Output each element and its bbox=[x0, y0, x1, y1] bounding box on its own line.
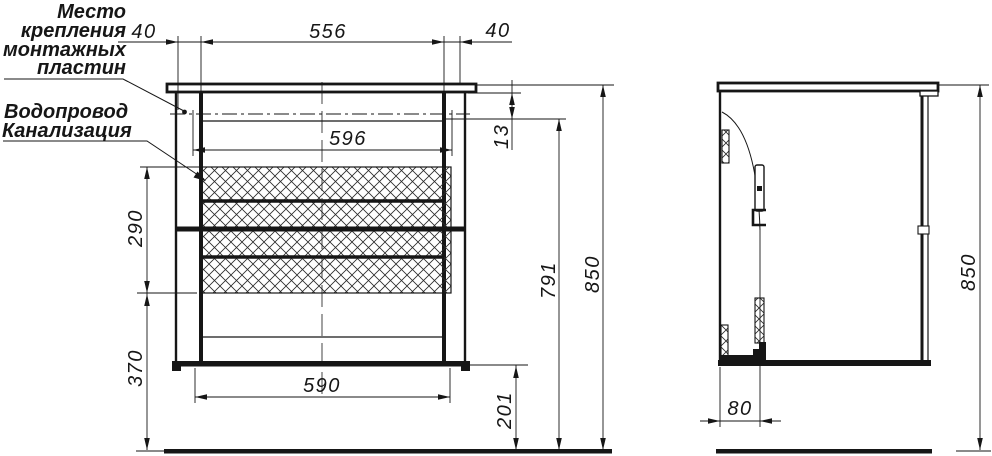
front-left-foot bbox=[172, 366, 181, 371]
side-floor-line bbox=[716, 449, 932, 454]
side-back-panel-joint bbox=[918, 226, 929, 234]
dim-text-596: 596 bbox=[329, 128, 367, 150]
hinge-pin-dot bbox=[757, 186, 762, 191]
plumbing-label-leader bbox=[3, 141, 204, 179]
dim-text-40-right: 40 bbox=[485, 20, 510, 42]
dim-text-80: 80 bbox=[727, 398, 752, 420]
drawing-canvas: Место крепления монтажных пластин Водопр… bbox=[0, 0, 992, 456]
drawing-sheet: Место крепления монтажных пластин Водопр… bbox=[0, 0, 992, 456]
side-bottom-panel bbox=[718, 360, 931, 366]
side-countertop bbox=[718, 83, 938, 91]
dim-text-40-left: 40 bbox=[131, 21, 156, 43]
dim-text-556: 556 bbox=[309, 21, 347, 43]
front-right-foot bbox=[461, 366, 470, 371]
front-countertop bbox=[167, 84, 476, 92]
lower-hinge-plate bbox=[755, 298, 764, 343]
mounting-label-line4: пластин bbox=[37, 57, 126, 79]
dim-text-590: 590 bbox=[303, 375, 341, 397]
dim-text-370: 370 bbox=[125, 349, 147, 387]
dim-text-13: 13 bbox=[491, 124, 513, 149]
front-bottom-panel bbox=[172, 361, 470, 367]
side-dimensions bbox=[700, 85, 989, 450]
dim-text-850-side: 850 bbox=[958, 253, 980, 291]
mounting-leader-dot bbox=[182, 110, 187, 115]
plumbing-label-line2: Канализация bbox=[2, 120, 132, 142]
dim-text-290: 290 bbox=[125, 209, 147, 248]
dim-text-201: 201 bbox=[494, 391, 516, 430]
arrowheads-side bbox=[708, 85, 983, 450]
dim-text-850-front: 850 bbox=[582, 255, 604, 293]
front-floor-line bbox=[164, 449, 612, 454]
upper-mounting-plate bbox=[722, 130, 729, 163]
side-view bbox=[716, 83, 991, 454]
dim-text-791: 791 bbox=[538, 261, 560, 299]
lower-bracket-foot bbox=[753, 342, 766, 356]
side-countertop-back-lip bbox=[920, 91, 938, 96]
